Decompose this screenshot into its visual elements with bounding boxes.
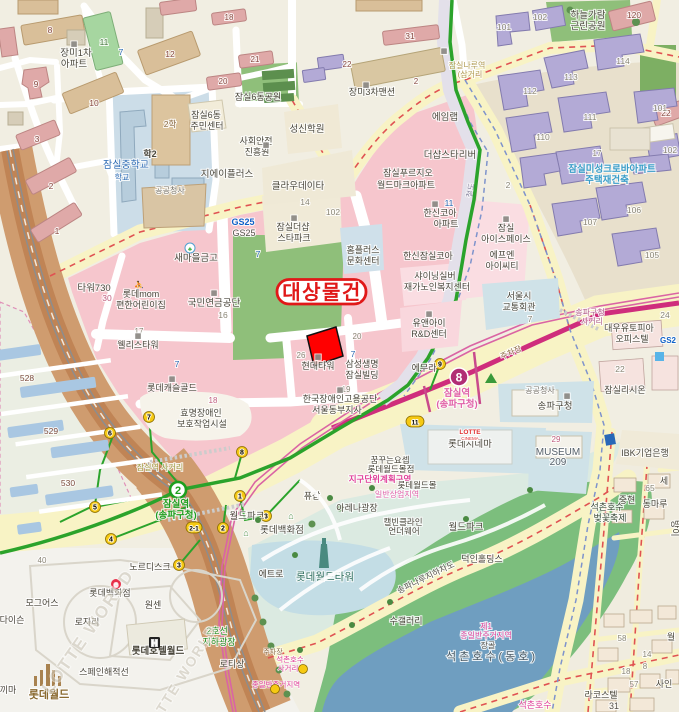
- svg-text:월드마크아파트: 월드마크아파트: [377, 179, 435, 190]
- svg-text:에트로: 에트로: [259, 569, 284, 579]
- svg-text:원센: 원센: [145, 600, 162, 610]
- svg-text:9: 9: [438, 362, 442, 369]
- svg-text:18: 18: [225, 13, 234, 22]
- svg-text:▦: ▦: [426, 311, 433, 318]
- svg-text:롯데월드몰: 롯데월드몰: [397, 480, 436, 490]
- svg-text:잠실더샵: 잠실더샵: [276, 222, 309, 232]
- svg-text:잠실역 사거리: 잠실역 사거리: [137, 462, 183, 472]
- svg-text:현대타워: 현대타워: [301, 361, 334, 371]
- svg-text:IBK기업은행: IBK기업은행: [621, 447, 669, 458]
- svg-text:아이스페이스: 아이스페이스: [481, 234, 531, 244]
- svg-text:11: 11: [100, 37, 109, 47]
- svg-text:▦: ▦: [315, 354, 322, 361]
- svg-text:7: 7: [256, 249, 261, 259]
- svg-text:65: 65: [645, 483, 655, 493]
- svg-text:성신학원: 성신학원: [290, 124, 325, 135]
- svg-text:▦: ▦: [71, 41, 78, 48]
- svg-text:529: 529: [44, 426, 58, 436]
- svg-text:에임랩: 에임랩: [432, 111, 458, 123]
- svg-text:롯데mom: 롯데mom: [123, 289, 160, 299]
- svg-text:105: 105: [645, 250, 659, 260]
- svg-text:석촌호수(동호): 석촌호수(동호): [446, 650, 538, 663]
- svg-text:사거리: 사거리: [581, 317, 603, 326]
- svg-text:31: 31: [405, 31, 415, 41]
- svg-text:209: 209: [550, 457, 567, 468]
- svg-text:동마루: 동마루: [643, 499, 668, 509]
- svg-text:▦: ▦: [263, 142, 270, 149]
- svg-text:22: 22: [343, 60, 352, 69]
- svg-text:530: 530: [61, 478, 75, 488]
- svg-text:120: 120: [627, 10, 641, 20]
- svg-text:R&D센터: R&D센터: [411, 329, 447, 339]
- svg-text:106: 106: [627, 205, 641, 215]
- svg-text:114: 114: [616, 56, 630, 66]
- svg-text:잠실나루역: 잠실나루역: [449, 60, 486, 70]
- svg-text:일반상업지역: 일반상업지역: [375, 489, 419, 499]
- svg-text:40: 40: [38, 556, 47, 565]
- svg-text:아파트: 아파트: [61, 59, 87, 70]
- svg-text:끼마: 끼마: [0, 685, 17, 695]
- svg-text:노르디스크: 노르디스크: [129, 562, 170, 572]
- svg-text:하늘가람: 하늘가람: [571, 9, 606, 21]
- svg-text:한신잠실코아: 한신잠실코아: [403, 251, 453, 261]
- svg-text:3: 3: [35, 134, 40, 144]
- svg-text:학교: 학교: [115, 172, 130, 182]
- svg-text:잠실역: 잠실역: [444, 387, 470, 399]
- svg-text:107: 107: [583, 217, 597, 227]
- svg-text:2-1: 2-1: [189, 526, 199, 533]
- svg-text:수갤러리: 수갤러리: [389, 615, 422, 626]
- svg-text:101: 101: [497, 22, 511, 32]
- svg-text:사인: 사인: [656, 679, 673, 689]
- svg-text:롯데캐슬골드: 롯데캐슬골드: [147, 383, 197, 393]
- svg-text:31: 31: [609, 701, 619, 711]
- svg-text:클라우데이타: 클라우데이타: [272, 181, 325, 192]
- svg-text:⌂: ⌂: [243, 528, 248, 538]
- svg-text:아레나광장: 아레나광장: [336, 502, 377, 513]
- svg-text:17: 17: [593, 149, 602, 158]
- svg-text:대상물건: 대상물건: [282, 281, 362, 304]
- svg-text:8: 8: [240, 450, 244, 457]
- svg-text:7: 7: [119, 47, 124, 57]
- svg-text:송파구청: 송파구청: [538, 401, 573, 412]
- svg-text:20: 20: [353, 332, 362, 341]
- svg-text:학2: 학2: [143, 148, 156, 159]
- svg-text:잠실중학교: 잠실중학교: [103, 159, 149, 171]
- svg-text:102: 102: [663, 145, 677, 155]
- svg-text:재가노인복지센터: 재가노인복지센터: [404, 282, 470, 292]
- svg-text:18: 18: [622, 667, 631, 676]
- svg-text:공공청사: 공공청사: [155, 186, 185, 195]
- svg-text:GS2: GS2: [660, 336, 677, 345]
- svg-text:2학: 2학: [164, 119, 177, 129]
- svg-text:서울시: 서울시: [507, 291, 532, 301]
- svg-text:⛹: ⛹: [134, 280, 144, 290]
- svg-text:(송파구청): (송파구청): [155, 509, 196, 521]
- svg-text:삼성생명: 삼성생명: [345, 359, 378, 369]
- svg-text:장골: 장골: [481, 640, 496, 650]
- svg-text:잠실6동공원: 잠실6동공원: [235, 92, 281, 102]
- svg-text:102: 102: [326, 207, 340, 217]
- svg-text:11: 11: [445, 198, 454, 208]
- svg-text:한국장애인고용공단: 한국장애인고용공단: [303, 394, 378, 404]
- svg-text:14: 14: [643, 650, 652, 659]
- svg-text:오피스텔: 오피스텔: [615, 333, 648, 344]
- svg-text:벚꽃축제: 벚꽃축제: [593, 513, 626, 523]
- svg-text:스타파크: 스타파크: [277, 233, 310, 243]
- svg-text:아파트: 아파트: [434, 219, 459, 229]
- svg-text:제1: 제1: [480, 622, 492, 631]
- svg-text:모그어스: 모그어스: [25, 598, 58, 608]
- svg-text:1: 1: [238, 494, 242, 501]
- svg-text:주민센터: 주민센터: [190, 121, 223, 131]
- svg-text:대우유토피아: 대우유토피아: [604, 323, 654, 333]
- svg-text:덕인홀딩스: 덕인홀딩스: [461, 553, 502, 564]
- svg-text:새마을금고: 새마을금고: [174, 253, 218, 264]
- svg-text:한신코아: 한신코아: [423, 208, 457, 218]
- svg-text:아이씨티: 아이씨티: [485, 261, 518, 271]
- svg-text:롯데월드몰점: 롯데월드몰점: [368, 464, 415, 474]
- svg-text:▦: ▦: [441, 48, 448, 55]
- svg-text:에프엔: 에프엔: [490, 250, 515, 260]
- svg-text:▦: ▦: [169, 376, 176, 383]
- svg-text:5: 5: [93, 505, 97, 512]
- svg-text:방이: 방이: [670, 520, 679, 537]
- svg-text:LOTTE: LOTTE: [459, 429, 481, 436]
- svg-text:⌂: ⌂: [288, 511, 293, 521]
- svg-text:샤이닝실버: 샤이닝실버: [414, 271, 455, 281]
- svg-text:스페인해적선: 스페인해적선: [79, 666, 129, 677]
- svg-text:111: 111: [584, 112, 597, 122]
- svg-text:7: 7: [175, 359, 180, 369]
- svg-text:22: 22: [615, 364, 625, 374]
- svg-text:CINEMA: CINEMA: [461, 436, 479, 441]
- svg-text:11: 11: [412, 420, 419, 427]
- svg-text:10: 10: [89, 98, 99, 108]
- svg-text:주택재건축: 주택재건축: [585, 174, 629, 186]
- svg-text:에무라: 에무라: [412, 363, 438, 373]
- svg-text:24: 24: [660, 310, 670, 320]
- svg-text:GS25: GS25: [232, 228, 255, 238]
- svg-text:(삼거리: (삼거리: [458, 69, 483, 79]
- svg-text:석촌호수: 석촌호수: [590, 502, 623, 512]
- svg-text:528: 528: [20, 373, 34, 383]
- svg-text:7: 7: [147, 415, 151, 422]
- svg-text:잠실: 잠실: [498, 223, 515, 233]
- svg-text:2: 2: [414, 77, 419, 86]
- svg-text:잠실푸르지오: 잠실푸르지오: [383, 168, 433, 178]
- svg-text:▦: ▦: [363, 82, 370, 89]
- svg-text:30: 30: [102, 293, 112, 303]
- svg-text:102: 102: [533, 12, 547, 22]
- svg-text:GS25: GS25: [231, 217, 254, 227]
- svg-text:26: 26: [297, 351, 306, 360]
- svg-text:웰리스타워: 웰리스타워: [117, 340, 158, 350]
- svg-text:장미3차맨션: 장미3차맨션: [349, 86, 395, 97]
- svg-text:종일반주거지역: 종일반주거지역: [460, 630, 512, 640]
- svg-text:8: 8: [48, 25, 53, 35]
- svg-text:더샵스타리버: 더샵스타리버: [424, 150, 476, 161]
- svg-text:▦: ▦: [291, 215, 298, 222]
- svg-text:석촌호수: 석촌호수: [518, 700, 551, 710]
- svg-text:잠실빌딩: 잠실빌딩: [345, 370, 378, 380]
- svg-text:유앤아이: 유앤아이: [412, 318, 445, 328]
- svg-text:7: 7: [528, 314, 533, 324]
- svg-text:언더웨어: 언더웨어: [388, 526, 419, 536]
- svg-text:▦: ▦: [432, 201, 439, 208]
- svg-text:(송파구청): (송파구청): [436, 398, 477, 410]
- svg-text:다이슨: 다이슨: [0, 615, 24, 625]
- svg-text:▦: ▦: [564, 393, 571, 400]
- svg-text:세: 세: [660, 476, 668, 486]
- svg-text:▦: ▦: [211, 290, 218, 297]
- svg-text:4: 4: [109, 537, 113, 544]
- svg-text:2: 2: [175, 485, 181, 497]
- svg-text:주차장: 주차장: [263, 647, 283, 656]
- svg-text:101: 101: [653, 103, 667, 113]
- svg-text:장미1차: 장미1차: [60, 47, 92, 59]
- svg-text:▦: ▦: [135, 333, 142, 340]
- svg-text:지에이플러스: 지에이플러스: [201, 169, 254, 180]
- svg-text:교통회관: 교통회관: [502, 302, 535, 312]
- svg-text:잠실6동: 잠실6동: [191, 110, 221, 120]
- svg-text:3: 3: [177, 563, 181, 570]
- svg-text:57: 57: [630, 680, 639, 689]
- svg-text:6: 6: [108, 431, 112, 438]
- svg-text:110: 110: [536, 132, 550, 142]
- svg-text:9: 9: [34, 79, 39, 89]
- svg-text:국민연금공단: 국민연금공단: [188, 298, 241, 309]
- svg-text:16: 16: [218, 310, 228, 320]
- svg-text:12: 12: [165, 49, 175, 59]
- svg-text:보호작업시설: 보호작업시설: [177, 419, 227, 429]
- svg-text:18: 18: [209, 396, 218, 405]
- svg-text:H: H: [151, 638, 157, 648]
- svg-text:월: 월: [667, 631, 675, 642]
- svg-text:7: 7: [351, 349, 356, 359]
- svg-text:21: 21: [251, 55, 260, 64]
- svg-text:로티상: 로티상: [220, 659, 245, 669]
- svg-text:14: 14: [300, 197, 310, 207]
- svg-text:문화센터: 문화센터: [346, 256, 379, 266]
- svg-text:29: 29: [552, 435, 561, 444]
- svg-text:잠실리시온: 잠실리시온: [604, 385, 645, 395]
- svg-text:58: 58: [618, 634, 627, 643]
- svg-text:효명장애인: 효명장애인: [180, 408, 221, 418]
- svg-text:1: 1: [55, 226, 60, 236]
- svg-text:8: 8: [643, 662, 648, 671]
- svg-text:홈플러스: 홈플러스: [346, 244, 379, 255]
- svg-text:편한어린이집: 편한어린이집: [116, 299, 166, 310]
- svg-text:20: 20: [219, 77, 228, 86]
- svg-text:112: 112: [523, 86, 537, 96]
- svg-text:공공청사: 공공청사: [525, 386, 555, 395]
- svg-text:잠실역: 잠실역: [163, 498, 189, 510]
- svg-text:▦: ▦: [337, 387, 344, 394]
- svg-text:라코스텔: 라코스텔: [584, 689, 617, 700]
- svg-text:▦: ▦: [503, 216, 510, 223]
- svg-text:2: 2: [49, 181, 54, 191]
- svg-text:서울동부지사: 서울동부지사: [312, 405, 362, 415]
- svg-text:송파구청: 송파구청: [575, 308, 604, 317]
- svg-text:♣: ♣: [188, 247, 192, 253]
- svg-text:근린공원: 근린공원: [571, 21, 606, 32]
- svg-text:3: 3: [264, 514, 268, 521]
- svg-text:월드파크: 월드파크: [449, 521, 484, 533]
- svg-text:2: 2: [221, 526, 225, 533]
- svg-text:113: 113: [564, 72, 578, 82]
- svg-text:2: 2: [506, 180, 511, 190]
- svg-text:8: 8: [456, 371, 463, 385]
- svg-text:롯데백화점: 롯데백화점: [260, 524, 304, 536]
- svg-text:사거리: 사거리: [278, 664, 299, 673]
- svg-text:잠실미성크로바아파트: 잠실미성크로바아파트: [568, 163, 656, 175]
